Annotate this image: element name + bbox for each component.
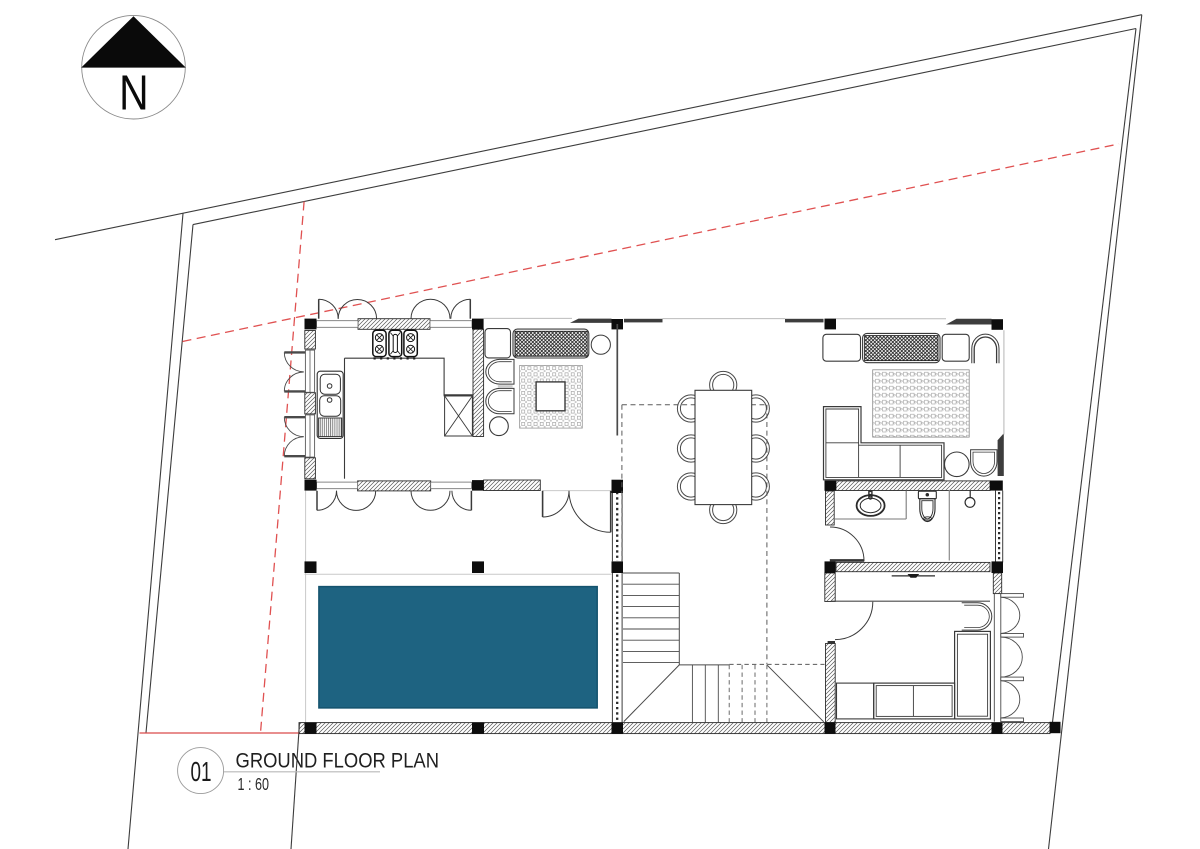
svg-text:GROUND FLOOR PLAN: GROUND FLOOR PLAN [236,749,440,773]
svg-text:01: 01 [191,756,212,787]
svg-text:N: N [119,67,149,121]
svg-text:1 : 60: 1 : 60 [238,774,270,794]
